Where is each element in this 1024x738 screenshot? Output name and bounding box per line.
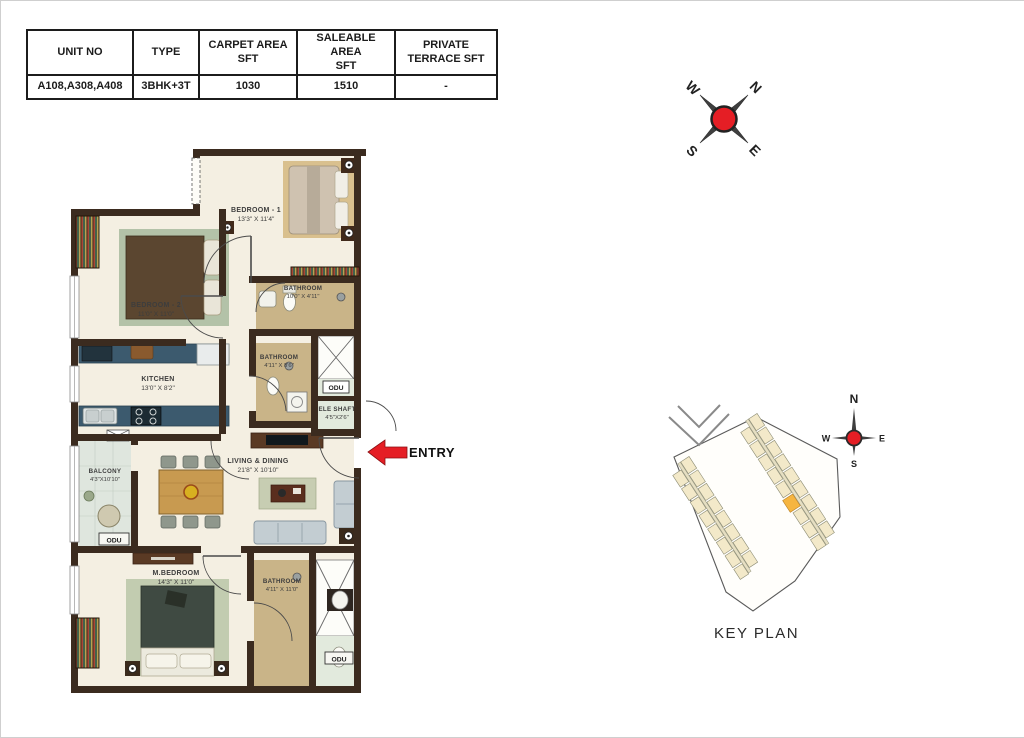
living-dims: 21'8" X 10'10" (238, 467, 280, 474)
kitchen-label: KITCHEN (141, 376, 174, 383)
entry-label: ENTRY (409, 445, 455, 460)
bed2-pillow (204, 240, 221, 275)
entry-marker: ENTRY (368, 440, 455, 465)
living-label: LIVING & DINING (227, 458, 289, 465)
bed2-pillow (204, 280, 221, 315)
cell-type: 3BHK+3T (133, 75, 199, 99)
bathroom1-label: BATHROOM (284, 285, 322, 292)
tv (266, 435, 308, 445)
odu-label: ODU (331, 657, 346, 664)
kitchen-dims: 13'0" X 8'2" (141, 385, 175, 392)
bedroom1-label: BEDROOM - 1 (231, 207, 281, 214)
entry-arrow-icon (368, 440, 407, 465)
compass-e: E (746, 141, 764, 159)
mbedroom-dims: 14'3" X 11'0" (158, 579, 195, 586)
bathroom2-dims: 4'11" X 8'6" (264, 363, 294, 369)
keyplan-compass-n: N (850, 392, 859, 406)
keyplan-compass-s: S (851, 459, 857, 469)
ele-shaft-dims: 4'5"X2'6" (325, 415, 348, 421)
bedroom1-dims: 13'3" X 11'4" (238, 216, 275, 223)
cutting-board (131, 345, 153, 359)
balcony-dims: 4'3"X10'10" (90, 477, 120, 483)
cell-carpet-area: 1030 (199, 75, 297, 99)
wardrobe-bedroom2 (76, 216, 99, 268)
plant-pot (84, 491, 94, 501)
cooktop-appliance (82, 346, 112, 361)
toilet (267, 377, 279, 395)
shower (337, 293, 345, 301)
balcony-label: BALCONY (89, 468, 122, 475)
odu-label: ODU (106, 538, 121, 545)
compass-s: S (683, 142, 701, 160)
bedroom1-furniture (283, 158, 357, 241)
dining-set (159, 456, 223, 528)
cell-private-terrace: - (395, 75, 497, 99)
bedroom2-furniture (119, 221, 234, 326)
table-header-row: UNIT NO TYPE CARPET AREA SFT SALEABLE AR… (27, 30, 497, 75)
floor-plan-sheet: UNIT NO TYPE CARPET AREA SFT SALEABLE AR… (0, 0, 1024, 738)
wardrobe-bedroom1 (291, 267, 359, 276)
open-ledge-dashed (192, 158, 200, 204)
washbasin (259, 291, 276, 307)
balcony-chair (98, 505, 120, 527)
header-saleable-area: SALEABLE AREA SFT (297, 30, 395, 75)
mbedroom-label: M.BEDROOM (152, 570, 199, 577)
ele-shaft-label: ELE SHAFT (318, 406, 355, 413)
header-private-terrace: PRIVATE TERRACE SFT (395, 30, 497, 75)
mbed-pillow (180, 654, 211, 668)
sofa-horizontal (254, 521, 326, 544)
bed1-pillow (335, 202, 348, 229)
table-data-row: A108,A308,A408 3BHK+3T 1030 1510 - (27, 75, 497, 99)
compass-n: N (747, 78, 765, 96)
unit-info-table: UNIT NO TYPE CARPET AREA SFT SALEABLE AR… (26, 29, 498, 100)
cell-saleable-area: 1510 (297, 75, 395, 99)
washing-machine (287, 392, 307, 412)
bathroom3-dims: 4'11" X 11'0" (266, 587, 298, 593)
keyplan-compass-e: E (879, 434, 885, 444)
compass-rose-icon: N S E W (666, 59, 786, 179)
key-plan-drawing: N S W E (649, 387, 899, 627)
mbed-pillow (146, 654, 177, 668)
bathroom3-label: BATHROOM (263, 578, 301, 585)
bedroom2-label: BEDROOM - 2 (131, 302, 181, 309)
cell-unit-no: A108,A308,A408 (27, 75, 133, 99)
bed1-pillow (335, 171, 348, 198)
fruit-bowl (184, 485, 198, 499)
bathroom2-label: BATHROOM (260, 354, 298, 361)
header-carpet-area: CARPET AREA SFT (199, 30, 297, 75)
key-plan-title: KEY PLAN (649, 625, 864, 642)
floor-plan-drawing: ODU ODU ODU BEDROOM - 1 13'3" X 11'4" BE… (51, 134, 471, 704)
header-unit-no: UNIT NO (27, 30, 133, 75)
odu-label: ODU (328, 385, 343, 392)
wardrobe-mbedroom (76, 618, 99, 668)
keyplan-compass-w: W (822, 434, 831, 444)
bathroom1-dims: 10'0" X 4'11" (287, 294, 320, 300)
bedroom2-dims: 11'0" X 11'0" (138, 311, 175, 318)
header-type: TYPE (133, 30, 199, 75)
bed1-runner (307, 166, 320, 234)
hob (131, 407, 161, 425)
